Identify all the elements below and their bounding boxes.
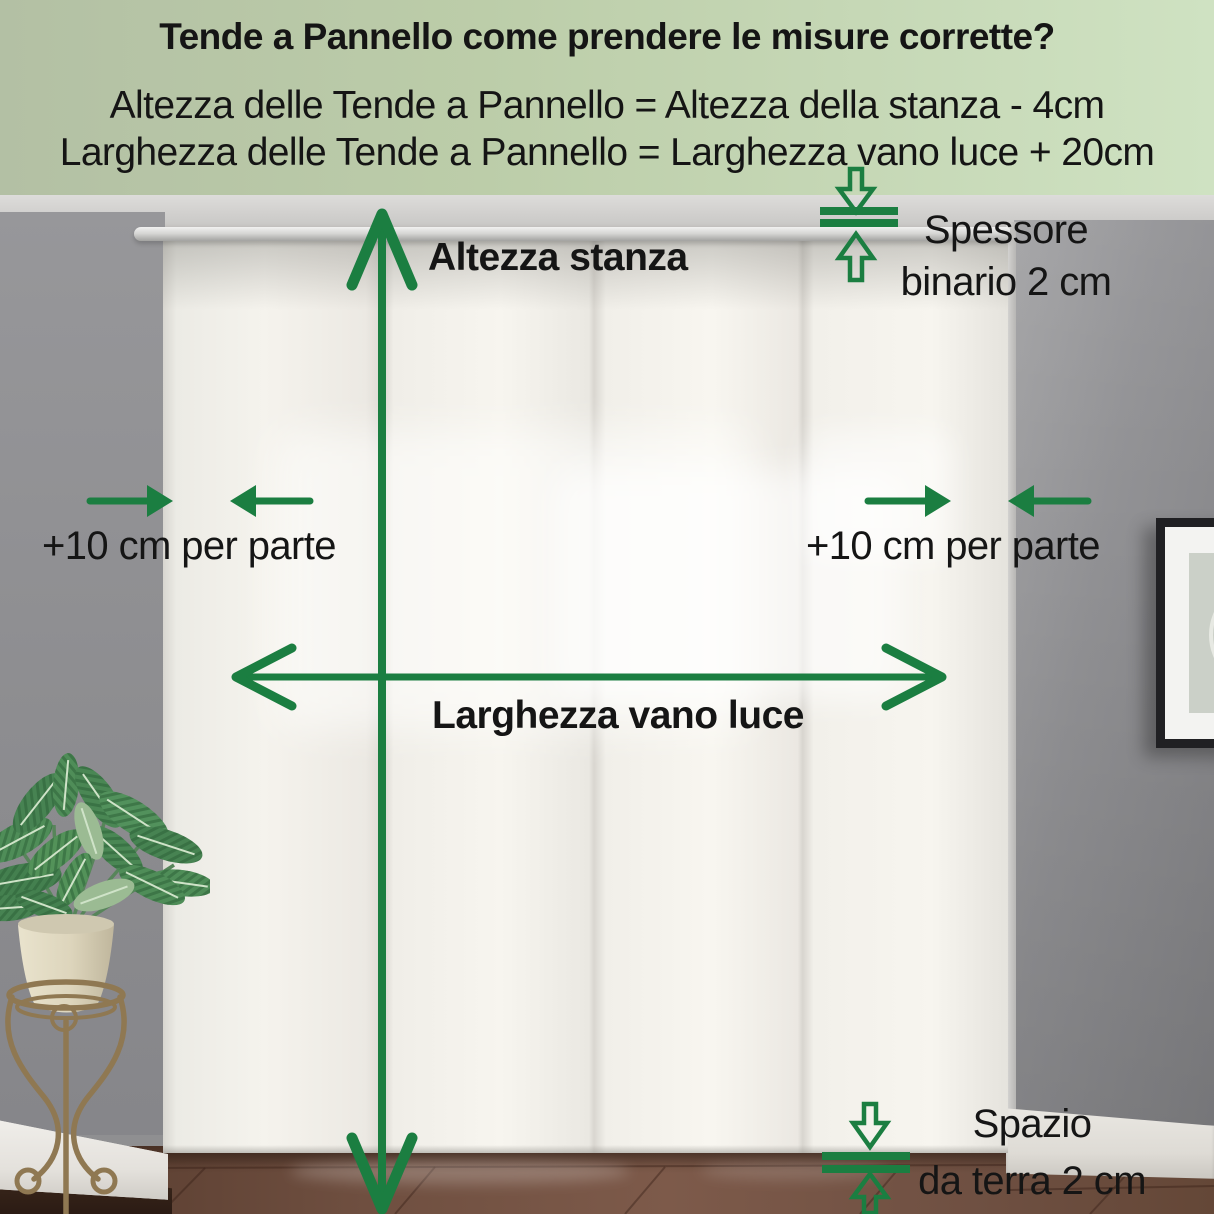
plant-leaves: [0, 752, 210, 927]
curtain-measurement-infographic: Tende a Pannello come prendere le misure…: [0, 0, 1214, 1214]
pot-rim: [18, 914, 114, 934]
plant-stand: [8, 982, 124, 1214]
frame-art-circle: [1209, 579, 1214, 691]
label-track-thickness-line2: binario 2 cm: [901, 256, 1112, 308]
label-track-thickness-line1: Spessore: [901, 204, 1112, 256]
label-extend-left: +10 cm per parte: [42, 524, 336, 569]
label-extend-right: +10 cm per parte: [806, 524, 1100, 569]
formula-width: Larghezza delle Tende a Pannello = Largh…: [0, 131, 1214, 175]
frame-mat: [1165, 527, 1214, 739]
potted-plant: [0, 745, 210, 1214]
frame-art: [1189, 553, 1214, 713]
label-floor-gap-line2: da terra 2 cm: [918, 1153, 1146, 1210]
title: Tende a Pannello come prendere le misure…: [0, 16, 1214, 58]
label-floor-gap: Spazio da terra 2 cm: [918, 1096, 1146, 1210]
label-floor-gap-line1: Spazio: [918, 1096, 1146, 1153]
label-opening-width: Larghezza vano luce: [432, 694, 804, 738]
label-track-thickness: Spessore binario 2 cm: [901, 204, 1112, 308]
label-room-height: Altezza stanza: [428, 236, 688, 280]
picture-frame: [1156, 518, 1214, 748]
formula-height: Altezza delle Tende a Pannello = Altezza…: [0, 84, 1214, 128]
header: Tende a Pannello come prendere le misure…: [0, 0, 1214, 195]
